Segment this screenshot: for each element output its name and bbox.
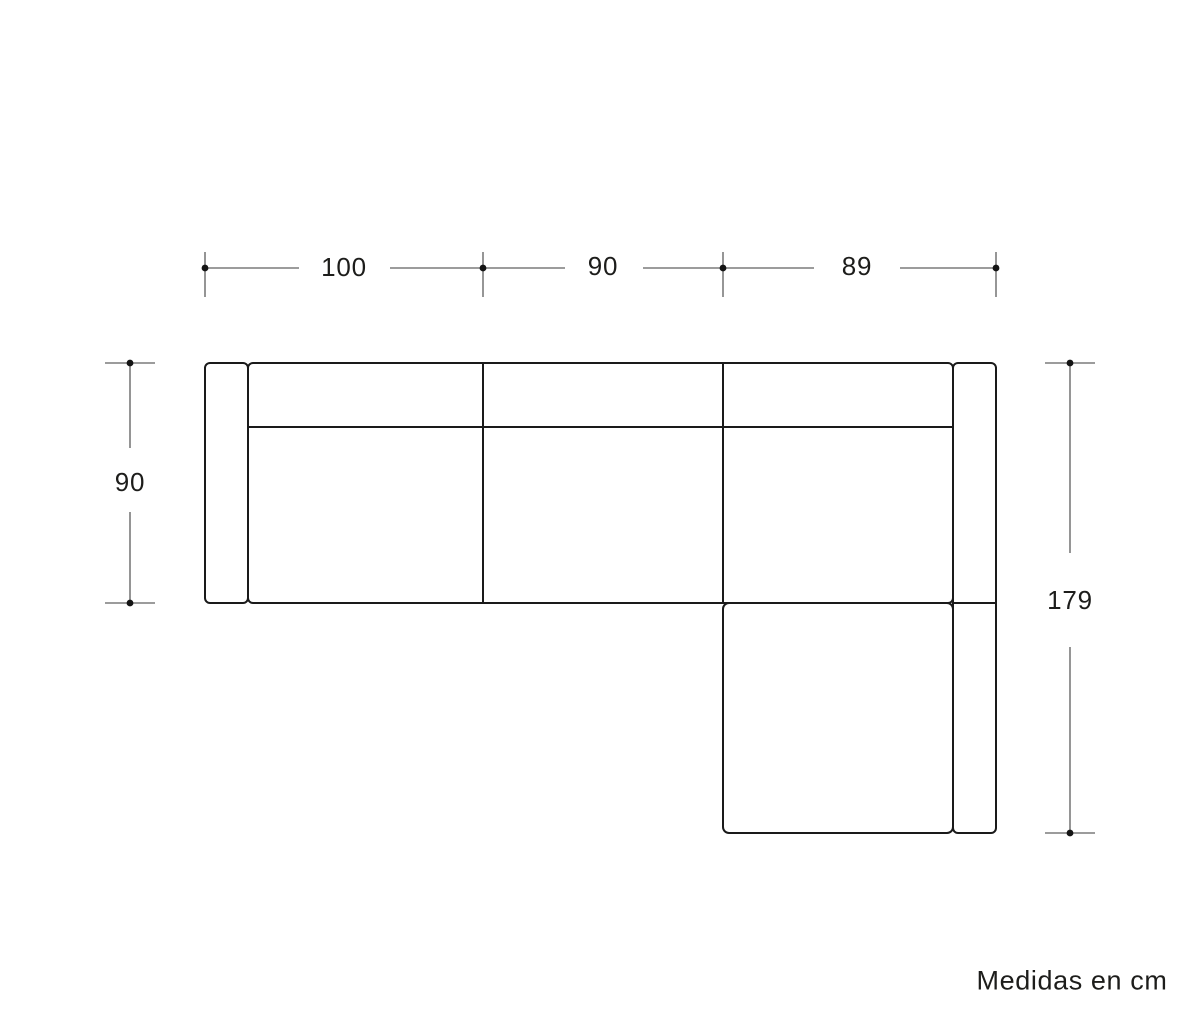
dimension-label-left-depth: 90 [115, 469, 146, 495]
diagram-canvas [0, 0, 1200, 1028]
sofa-right-armrest [953, 363, 996, 833]
dimension-label-top-width-1: 100 [321, 254, 367, 280]
dimension-label-top-width-2: 90 [588, 253, 619, 279]
dimension-label-right-depth: 179 [1047, 587, 1093, 613]
units-note: Medidas en cm [977, 968, 1168, 995]
dimension-lines [105, 252, 1095, 833]
sofa-main-body [248, 363, 953, 603]
dimension-dots [127, 265, 1074, 837]
sofa-chaise-module [723, 603, 953, 833]
sofa-left-armrest [205, 363, 248, 603]
sofa-dimension-diagram: 100 90 89 90 179 Medidas en cm [0, 0, 1200, 1028]
dimension-label-top-width-3: 89 [842, 253, 873, 279]
sofa-outline [205, 363, 996, 833]
